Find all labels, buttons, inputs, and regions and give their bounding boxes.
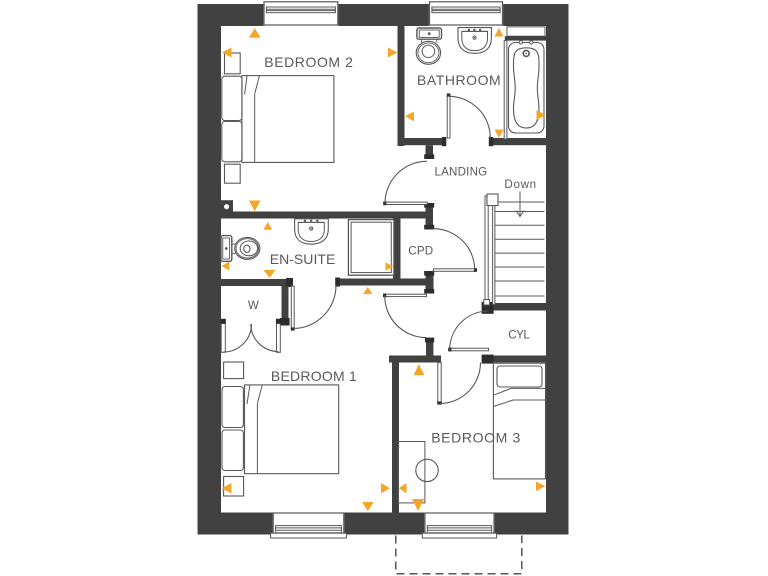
svg-text:W: W [248, 299, 259, 312]
svg-text:CPD: CPD [408, 245, 433, 258]
svg-text:BEDROOM 2: BEDROOM 2 [264, 54, 353, 70]
svg-text:CYL: CYL [508, 329, 530, 342]
svg-text:Down: Down [504, 178, 536, 191]
svg-text:LANDING: LANDING [435, 166, 488, 179]
svg-text:EN-SUITE: EN-SUITE [270, 251, 336, 267]
svg-text:BEDROOM 3: BEDROOM 3 [431, 430, 520, 446]
svg-text:BATHROOM: BATHROOM [417, 72, 501, 88]
svg-text:BEDROOM 1: BEDROOM 1 [271, 368, 357, 384]
